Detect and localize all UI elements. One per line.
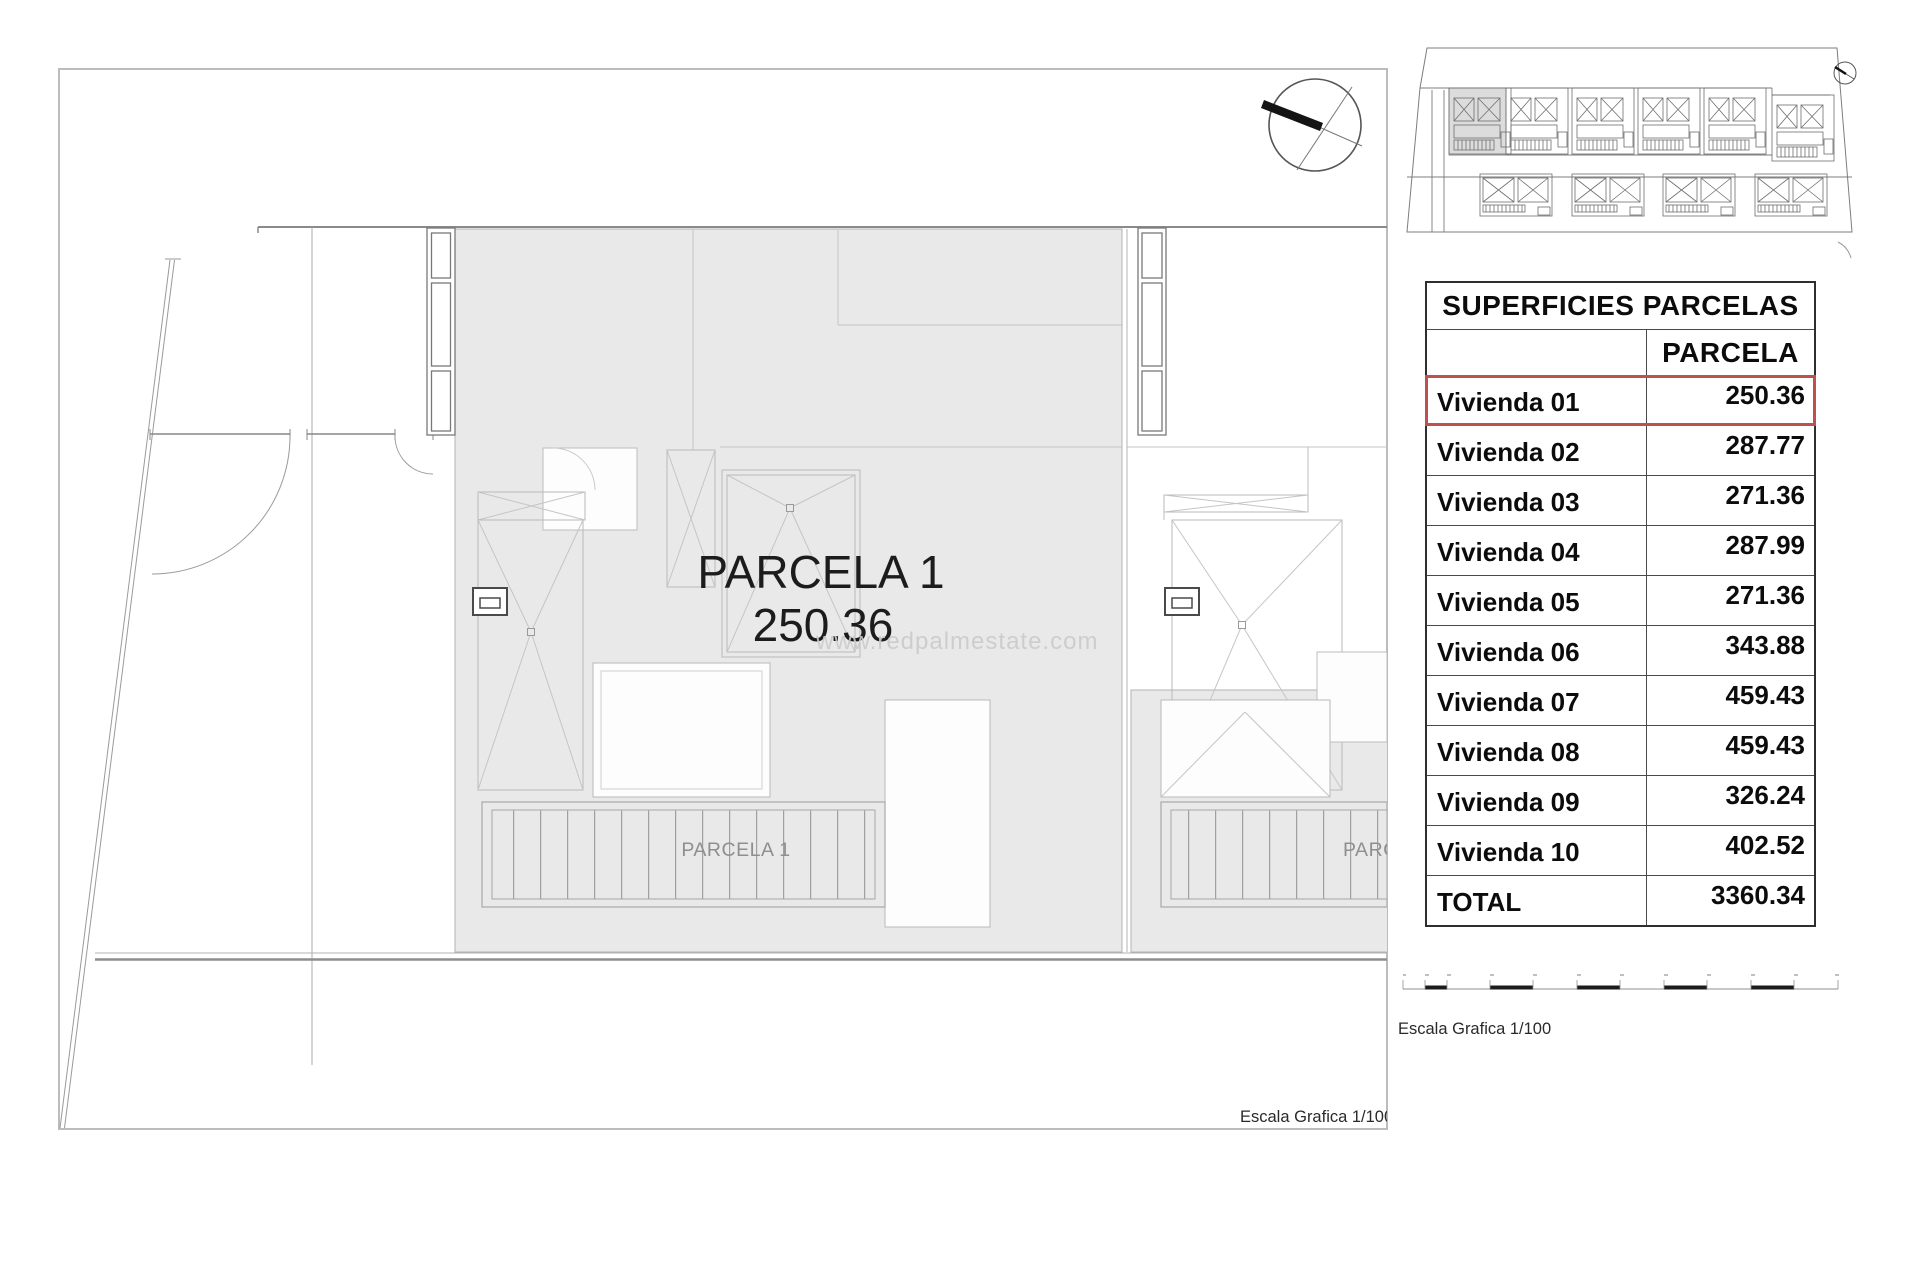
scalebar-caption: Escala Grafica 1/100 bbox=[1398, 1020, 1551, 1038]
watermark-text: www.redpalmestate.com bbox=[815, 628, 1098, 655]
table-title: SUPERFICIES PARCELAS bbox=[1427, 283, 1814, 330]
parcel-title: PARCELA 1 bbox=[697, 546, 944, 598]
row-label: Vivienda 06 bbox=[1427, 626, 1647, 675]
total-label: TOTAL bbox=[1427, 876, 1647, 925]
row-value: 459.43 bbox=[1647, 726, 1814, 775]
row-label: Vivienda 02 bbox=[1427, 426, 1647, 475]
row-value: 326.24 bbox=[1647, 776, 1814, 825]
row-label: Vivienda 07 bbox=[1427, 676, 1647, 725]
parcel-1-entry-marker bbox=[473, 588, 507, 615]
row-label: Vivienda 01 bbox=[1427, 376, 1647, 425]
table-row: Vivienda 01 250.36 bbox=[1427, 375, 1814, 425]
sheet-scale-caption: Escala Grafica 1/100 bbox=[1240, 1108, 1393, 1126]
row-value: 459.43 bbox=[1647, 676, 1814, 725]
scale-bar bbox=[1403, 975, 1839, 989]
row-value: 343.88 bbox=[1647, 626, 1814, 675]
table-row: Vivienda 04 287.99 bbox=[1427, 525, 1814, 575]
table-row: Vivienda 05 271.36 bbox=[1427, 575, 1814, 625]
row-label: Vivienda 10 bbox=[1427, 826, 1647, 875]
table-total-row: TOTAL 3360.34 bbox=[1427, 875, 1814, 925]
overview-thumbnail bbox=[1407, 48, 1856, 258]
mini-compass-icon bbox=[1834, 62, 1856, 84]
row-label: Vivienda 09 bbox=[1427, 776, 1647, 825]
row-label: Vivienda 04 bbox=[1427, 526, 1647, 575]
table-row: Vivienda 06 343.88 bbox=[1427, 625, 1814, 675]
row-value: 287.99 bbox=[1647, 526, 1814, 575]
row-value: 271.36 bbox=[1647, 576, 1814, 625]
table-row: Vivienda 09 326.24 bbox=[1427, 775, 1814, 825]
table-column-header: PARCELA bbox=[1647, 330, 1814, 375]
parcel-2-stairs bbox=[1138, 228, 1166, 435]
parcel-1-strip-label: PARCELA 1 bbox=[681, 839, 790, 861]
table-row: Vivienda 07 459.43 bbox=[1427, 675, 1814, 725]
table-row: Vivienda 02 287.77 bbox=[1427, 425, 1814, 475]
row-value: 287.77 bbox=[1647, 426, 1814, 475]
plan-sheet-page: PARCELA 1 bbox=[0, 0, 1920, 1280]
table-row: Vivienda 03 271.36 bbox=[1427, 475, 1814, 525]
parcel-2-strip-label: PARC bbox=[1343, 839, 1398, 861]
row-label: Vivienda 08 bbox=[1427, 726, 1647, 775]
row-label: Vivienda 05 bbox=[1427, 576, 1647, 625]
parcel-1-stairs bbox=[427, 228, 455, 435]
table-row: Vivienda 10 402.52 bbox=[1427, 825, 1814, 875]
table-header-spacer bbox=[1427, 330, 1647, 375]
table-header-row: PARCELA bbox=[1427, 330, 1814, 375]
row-value: 250.36 bbox=[1647, 376, 1814, 425]
parcel-2-entry-marker bbox=[1165, 588, 1199, 615]
row-label: Vivienda 03 bbox=[1427, 476, 1647, 525]
row-value: 271.36 bbox=[1647, 476, 1814, 525]
surfaces-table: SUPERFICIES PARCELAS PARCELA Vivienda 01… bbox=[1425, 281, 1816, 927]
table-row: Vivienda 08 459.43 bbox=[1427, 725, 1814, 775]
total-value: 3360.34 bbox=[1647, 876, 1814, 925]
row-value: 402.52 bbox=[1647, 826, 1814, 875]
